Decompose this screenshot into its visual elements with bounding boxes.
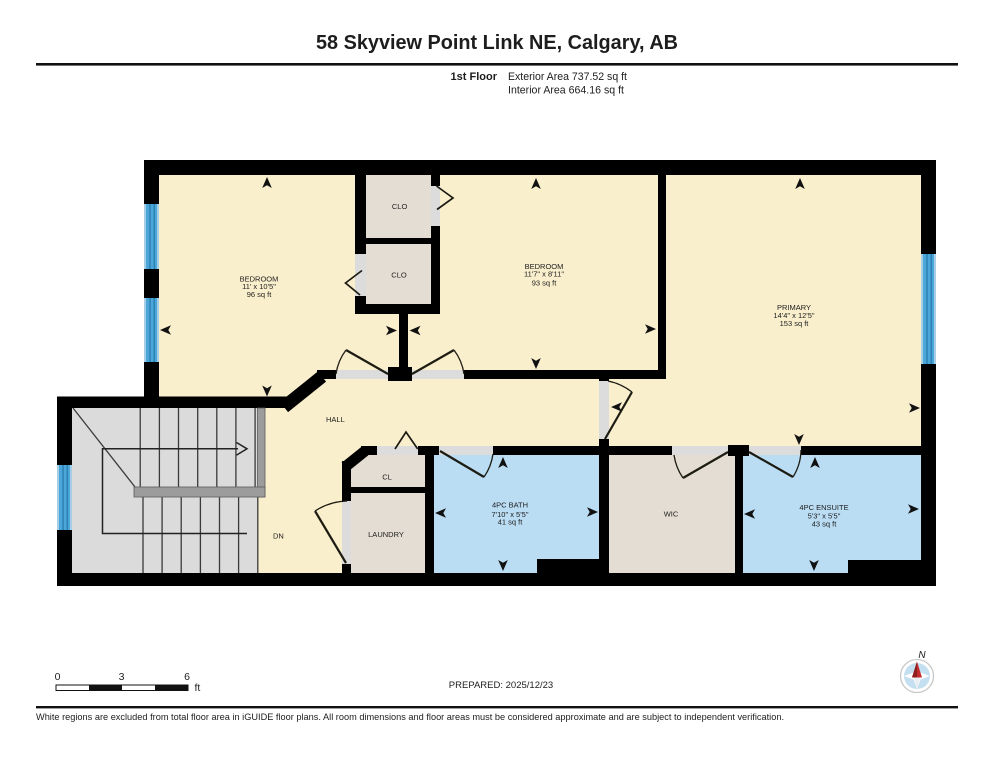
svg-text:58 Skyview Point Link NE, Calg: 58 Skyview Point Link NE, Calgary, AB [316, 32, 678, 54]
svg-text:White regions are excluded fro: White regions are excluded from total fl… [36, 712, 784, 722]
svg-text:Interior Area 664.16 sq ft: Interior Area 664.16 sq ft [508, 84, 624, 96]
svg-text:3: 3 [119, 671, 125, 683]
svg-text:6: 6 [184, 671, 190, 683]
svg-text:93 sq ft: 93 sq ft [532, 279, 558, 288]
svg-text:PREPARED: 2025/12/23: PREPARED: 2025/12/23 [449, 680, 553, 691]
svg-text:CLO: CLO [392, 202, 408, 211]
svg-text:CL: CL [382, 473, 392, 482]
svg-text:LAUNDRY: LAUNDRY [368, 530, 404, 539]
svg-text:HALL: HALL [326, 415, 345, 424]
svg-text:4PC BATH: 4PC BATH [492, 500, 528, 509]
svg-text:41 sq ft: 41 sq ft [498, 517, 524, 526]
svg-text:ft: ft [195, 682, 201, 694]
svg-text:DN: DN [273, 531, 284, 540]
svg-text:Exterior Area 737.52 sq ft: Exterior Area 737.52 sq ft [508, 71, 627, 83]
svg-text:1st Floor: 1st Floor [451, 71, 498, 83]
svg-text:0: 0 [55, 671, 61, 683]
svg-text:WIC: WIC [664, 509, 679, 518]
svg-text:CLO: CLO [391, 271, 407, 280]
svg-text:153 sq ft: 153 sq ft [780, 319, 810, 328]
svg-text:43 sq ft: 43 sq ft [812, 520, 838, 529]
svg-text:11'7" x 8'11": 11'7" x 8'11" [524, 270, 564, 279]
svg-text:N: N [918, 650, 926, 661]
svg-text:96 sq ft: 96 sq ft [247, 290, 273, 299]
